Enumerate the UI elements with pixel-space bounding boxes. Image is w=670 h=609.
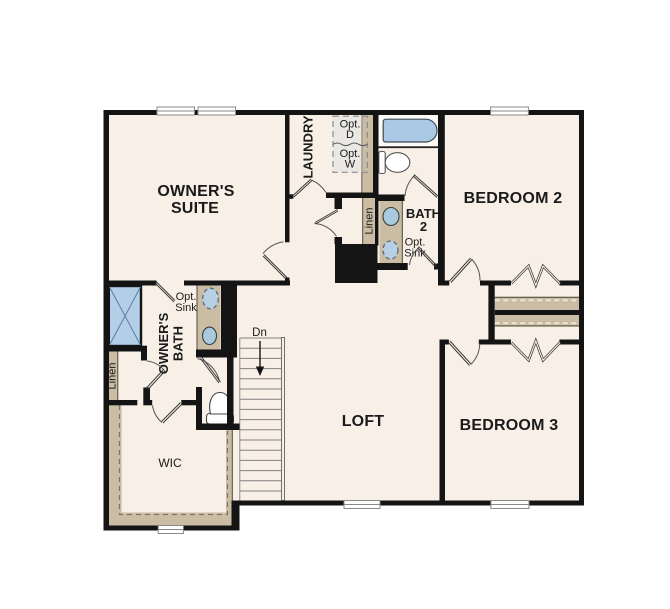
svg-text:SUITE: SUITE (171, 200, 219, 217)
svg-text:D: D (346, 129, 354, 141)
svg-text:LOFT: LOFT (342, 413, 385, 430)
svg-text:Sink: Sink (175, 302, 197, 314)
svg-text:2: 2 (420, 219, 427, 234)
svg-text:Dn: Dn (252, 327, 267, 339)
svg-text:LAUNDRY: LAUNDRY (301, 115, 316, 178)
svg-text:BEDROOM 3: BEDROOM 3 (460, 417, 559, 434)
svg-text:WIC: WIC (158, 456, 182, 470)
svg-text:Linen: Linen (363, 208, 375, 235)
svg-text:W: W (345, 159, 356, 171)
svg-text:OWNER'S: OWNER'S (157, 183, 234, 200)
svg-text:BATH: BATH (171, 326, 186, 361)
svg-text:BEDROOM 2: BEDROOM 2 (464, 190, 563, 207)
